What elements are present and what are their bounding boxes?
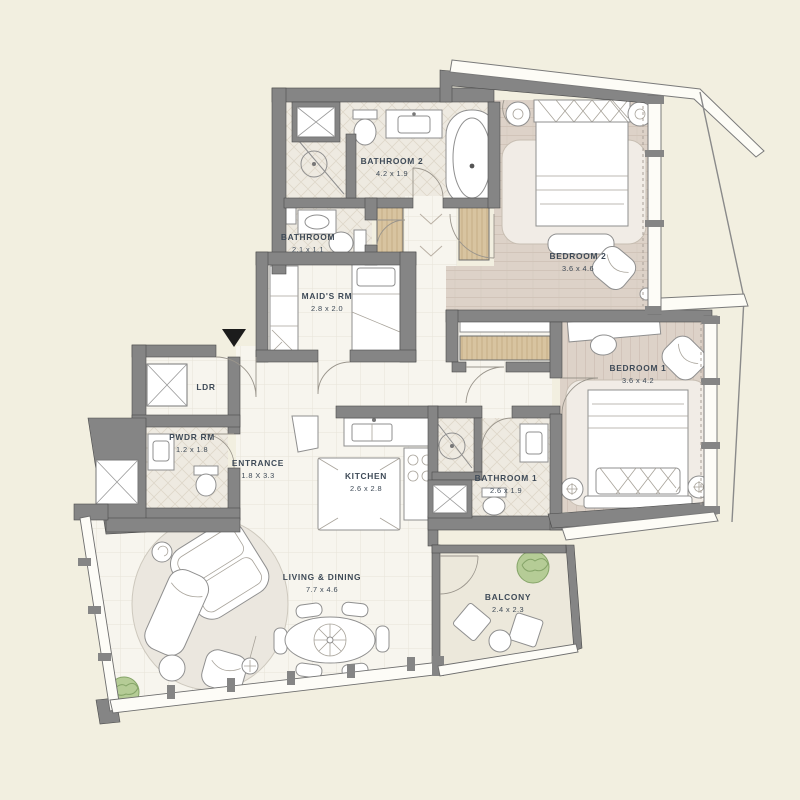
kitchen-dims: 2.6 x 2.8	[350, 484, 382, 493]
wall-segment	[256, 252, 268, 362]
kitchen-label: KITCHEN	[345, 471, 387, 481]
living-dining-dims: 7.7 x 4.6	[306, 585, 338, 594]
wall-segment	[272, 88, 286, 274]
service-shaft-icon	[428, 480, 472, 518]
wall-segment	[446, 310, 458, 362]
wall-segment	[432, 545, 440, 673]
wall-segment	[74, 504, 108, 520]
wall-segment	[336, 406, 438, 418]
bathroom1-label: BATHROOM 1	[475, 473, 538, 483]
kitchen-sink-icon	[344, 418, 438, 446]
wall-segment	[474, 418, 482, 472]
ldr-label: LDR	[196, 382, 215, 392]
wardrobe	[459, 206, 489, 260]
bedroom1-dims: 3.6 x 4.2	[622, 376, 654, 385]
wall-segment	[346, 134, 356, 198]
toilet-icon	[353, 110, 377, 145]
wall-segment	[284, 198, 413, 208]
wall-segment	[550, 322, 562, 378]
wall-segment	[443, 198, 494, 208]
wardrobe	[460, 336, 550, 360]
maids-room-dims: 2.8 x 2.0	[311, 304, 343, 313]
balcony-label: BALCONY	[485, 592, 531, 602]
laundry-shaft-icon	[147, 364, 187, 406]
wall-segment	[106, 518, 240, 532]
shelf-icon	[286, 206, 296, 224]
double-bed-icon	[534, 100, 630, 226]
closet-icon	[270, 266, 298, 356]
wall-segment	[506, 362, 552, 372]
wall-segment	[400, 252, 416, 362]
wall-segment	[256, 350, 318, 362]
powder-room-label: PWDR RM	[169, 432, 215, 442]
living-dining-label: LIVING & DINING	[283, 572, 361, 582]
single-bed-icon	[352, 264, 400, 358]
sink-icon	[298, 210, 336, 234]
wall-segment	[272, 88, 494, 102]
bathroom1-dims: 2.6 x 1.9	[490, 486, 522, 495]
ottoman-icon	[159, 655, 185, 681]
powder-room-dims: 1.2 x 1.8	[176, 445, 208, 454]
wall-segment	[432, 545, 566, 553]
window-band	[701, 316, 720, 514]
entrance-dims: 1.8 X 3.3	[241, 471, 274, 480]
bathroom2-label: BATHROOM 2	[361, 156, 424, 166]
balcony-dims: 2.4 x 2.3	[492, 605, 524, 614]
maids-room-label: MAID'S RM	[302, 291, 353, 301]
wall-segment	[488, 102, 500, 208]
facade-band	[661, 294, 748, 311]
elevator-shaft-icon	[96, 460, 138, 504]
bathroom-label: BATHROOM	[281, 232, 335, 242]
wall-segment	[256, 252, 416, 265]
toilet-icon	[194, 466, 218, 496]
double-bed-icon	[584, 390, 692, 508]
sink-vanity-icon	[386, 110, 442, 138]
wall-segment	[365, 198, 377, 220]
wall-segment	[452, 362, 466, 372]
entry-marker-icon	[222, 329, 246, 347]
wall-segment	[550, 414, 562, 530]
plant-icon	[517, 551, 549, 583]
side-table-icon	[152, 542, 172, 562]
bedroom1-label: BEDROOM 1	[609, 363, 666, 373]
bathroom-dims: 2.1 x 1.1	[292, 245, 324, 254]
wall-segment	[446, 310, 712, 322]
sink-icon	[520, 424, 548, 462]
bedroom2-dims: 3.6 x 4.6	[562, 264, 594, 273]
wall-segment	[350, 350, 416, 362]
bathroom2-dims: 4.2 x 1.9	[376, 169, 408, 178]
hall-floor-north	[416, 262, 446, 354]
wall-segment	[132, 415, 240, 427]
wall-segment	[438, 406, 482, 418]
bedroom2-label: BEDROOM 2	[549, 251, 606, 261]
floor-plan: BATHROOM 2 4.2 x 1.9 BATHROOM 2.1 x 1.1 …	[0, 0, 800, 800]
floor-plan-canvas: BATHROOM 2 4.2 x 1.9 BATHROOM 2.1 x 1.1 …	[0, 0, 800, 800]
elevator-shaft-icon	[292, 102, 340, 142]
kitchen-island-icon	[318, 458, 400, 530]
balcony-table-icon	[489, 630, 511, 652]
entrance-label: ENTRANCE	[232, 458, 284, 468]
